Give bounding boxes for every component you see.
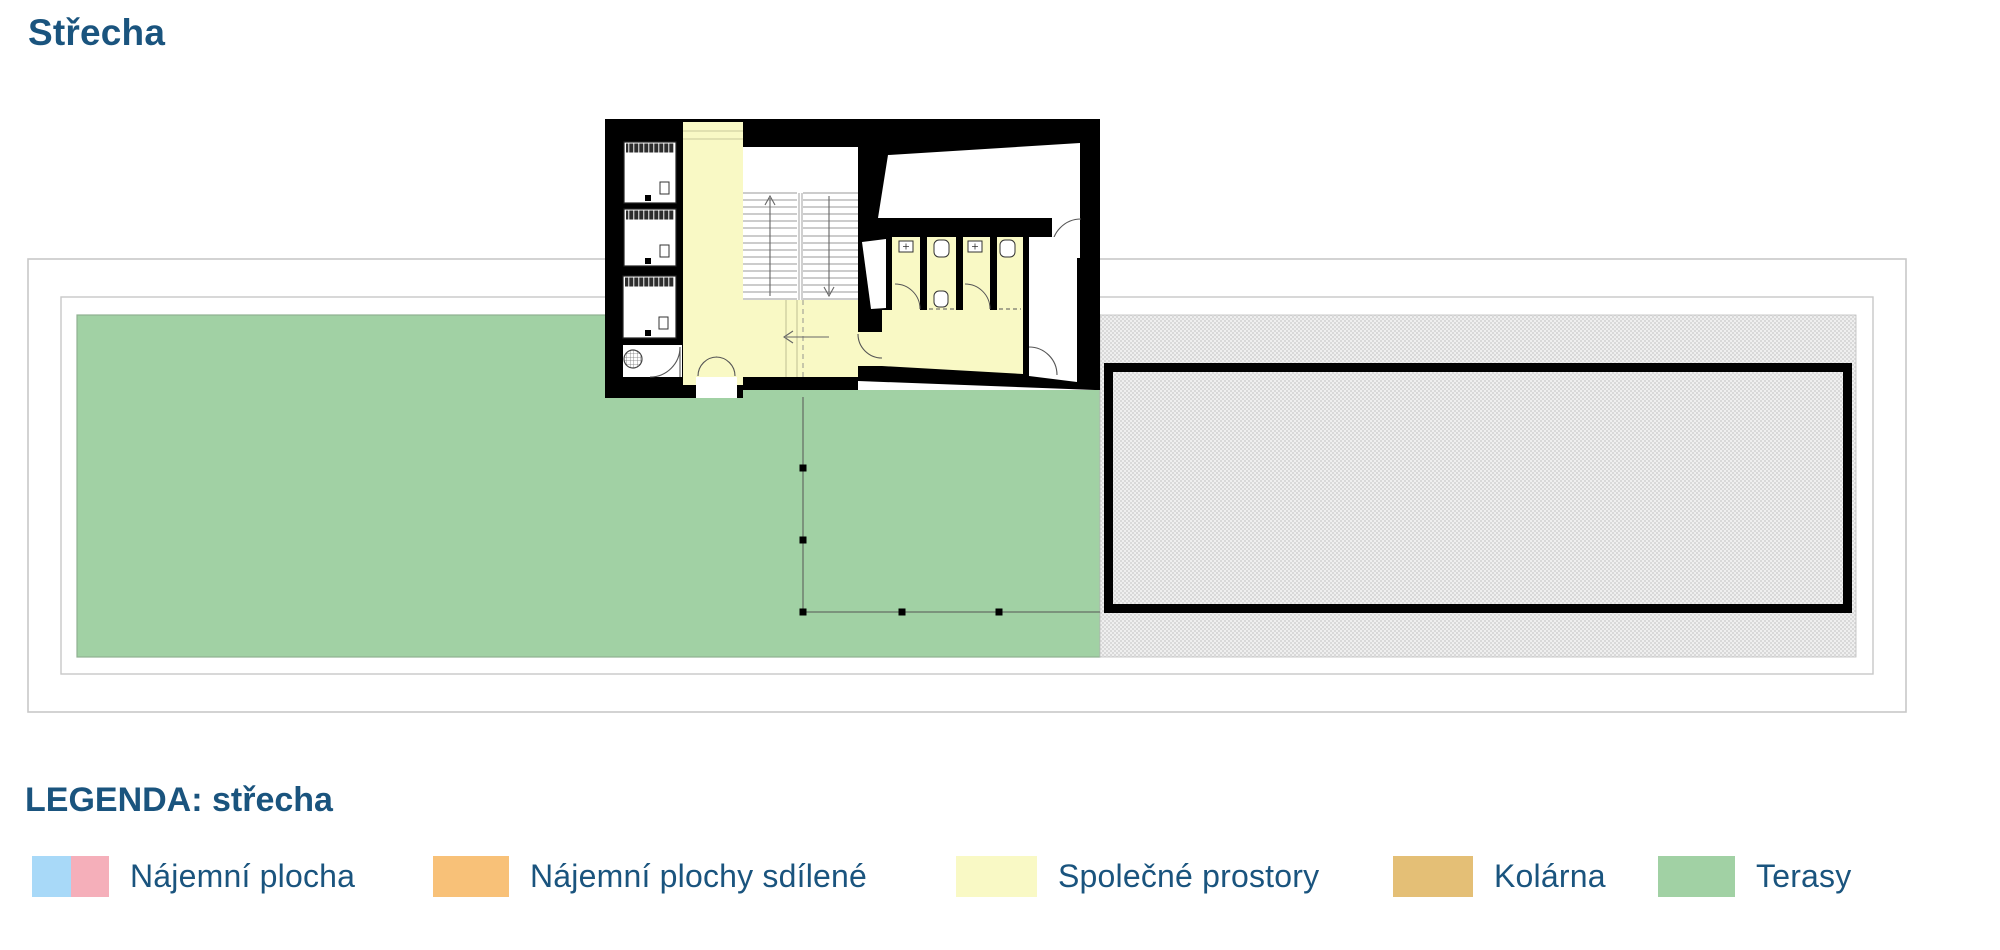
column-marker [800, 465, 807, 472]
shared-rental-swatch [433, 856, 509, 897]
rental-pink-swatch [71, 856, 110, 897]
legend-item-spolecne-prostory: Společné prostory [956, 856, 1319, 897]
bike-room-swatch [1393, 856, 1473, 897]
legend-label: Společné prostory [1058, 858, 1319, 895]
elevator-1 [624, 142, 676, 203]
legend-heading: LEGENDA: střecha [25, 781, 333, 820]
elevator-3 [623, 276, 676, 338]
common-spaces-swatch [956, 856, 1037, 897]
core-lobby [683, 122, 743, 385]
toilet-symbol [1000, 240, 1015, 257]
column-marker [899, 609, 906, 616]
core-room-north [878, 143, 1080, 218]
legend-item-najemni-plocha: Nájemní plocha [32, 856, 355, 897]
legend-item-najemni-plochy-sdilene: Nájemní plochy sdílené [433, 856, 867, 897]
staircase [743, 147, 858, 377]
column-marker [800, 609, 807, 616]
drain-symbol [624, 350, 642, 368]
terraces-swatch [1658, 856, 1735, 897]
legend-item-terasy: Terasy [1658, 856, 1851, 897]
legend-label: Terasy [1756, 858, 1851, 895]
toilet-symbol [934, 291, 948, 307]
toilet-symbol [934, 240, 949, 257]
building-core [605, 119, 1100, 398]
column-marker [800, 537, 807, 544]
rental-blue-swatch [32, 856, 71, 897]
legend-label: Nájemní plocha [130, 858, 355, 895]
core-corridor [882, 310, 1023, 374]
core-room-southwest [623, 345, 682, 377]
column-marker [996, 609, 1003, 616]
legend-item-kolarna: Kolárna [1393, 856, 1606, 897]
rental-area-swatch [32, 856, 109, 897]
legend-label: Kolárna [1494, 858, 1606, 895]
elevator-2 [624, 209, 676, 266]
elevator-bank [623, 142, 676, 338]
legend-label: Nájemní plochy sdílené [530, 858, 867, 895]
